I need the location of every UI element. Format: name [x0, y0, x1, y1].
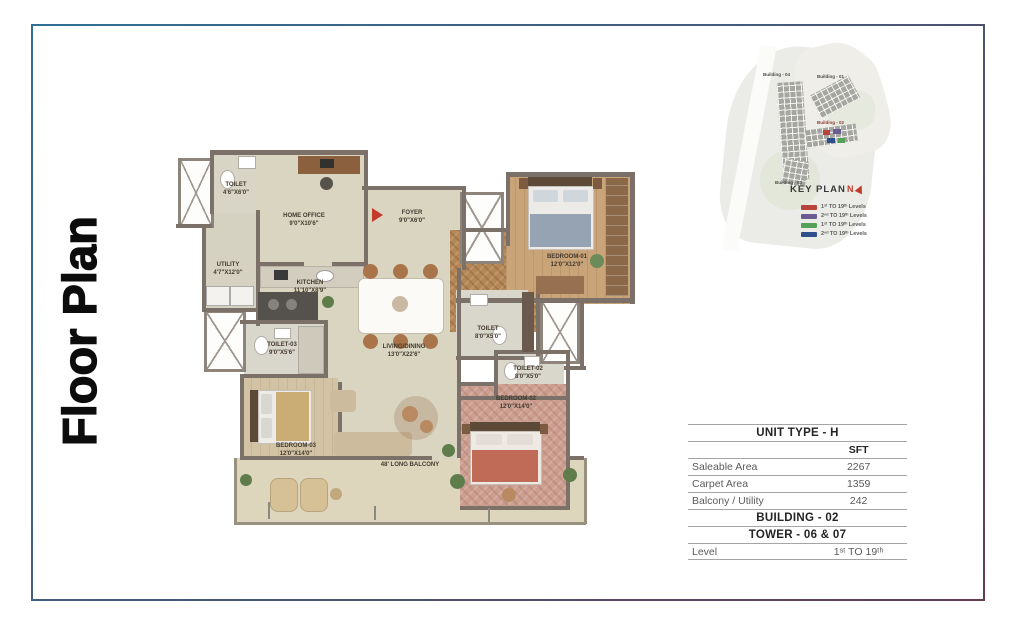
- room-dim: 8'0"X5'0": [475, 334, 501, 342]
- dimension-tick: [374, 506, 376, 520]
- row-label: Balcony / Utility: [688, 495, 810, 507]
- pillow: [261, 394, 272, 414]
- row-label: Carpet Area: [688, 478, 810, 490]
- legend-row: 1ˢᵗ TO 19ᵗʰ Levels: [801, 222, 867, 228]
- dining-chair: [363, 264, 378, 279]
- wall: [240, 456, 432, 460]
- wall: [240, 376, 244, 458]
- elevator-shaft: [540, 300, 580, 364]
- elevator-shaft: [178, 158, 214, 228]
- pillow: [261, 418, 272, 438]
- bed1-blanket: [530, 214, 591, 247]
- chair: [590, 254, 604, 268]
- building-label: Building - 01: [817, 74, 844, 79]
- legend-label: 2ⁿᵈ TO 19ᵗʰ Levels: [821, 231, 867, 237]
- table-row-saleable: Saleable Area 2267: [688, 458, 907, 475]
- pillow: [533, 190, 558, 202]
- room-dim: 11'10"X8'9": [294, 288, 326, 296]
- wall: [462, 228, 508, 232]
- table-row-balcony: Balcony / Utility 242: [688, 492, 907, 509]
- dimension-tick: [488, 508, 490, 522]
- legend-swatch-purple: [801, 214, 817, 219]
- side-table: [519, 178, 528, 189]
- row-label: Level: [688, 546, 810, 558]
- dimension-tick: [268, 502, 270, 519]
- legend-label: 1ˢᵗ TO 19ᵗʰ Levels: [821, 222, 866, 228]
- pillow: [563, 190, 588, 202]
- wall: [210, 150, 214, 214]
- room-dim: 12'0"X14'0": [500, 404, 533, 412]
- burner: [286, 299, 297, 310]
- wall: [536, 290, 540, 358]
- room-name: BEDROOM-03: [276, 443, 316, 451]
- toilet-sink: [238, 156, 256, 169]
- room-dim: 12'0"X12'0": [551, 262, 584, 270]
- wall: [364, 150, 368, 270]
- table-row-level: Level 1ˢᵗ TO 19ᵗʰ: [688, 543, 907, 560]
- wall: [324, 320, 328, 378]
- legend-swatch-green: [801, 223, 817, 228]
- entry-arrow-icon: [372, 208, 383, 222]
- shower: [298, 326, 324, 374]
- pouf: [402, 406, 418, 422]
- balcony-railing: [234, 522, 586, 525]
- wall: [202, 308, 258, 312]
- toilet-sink: [470, 294, 488, 306]
- bed2-blanket: [472, 450, 538, 482]
- tower-title: TOWER - 06 & 07: [688, 526, 907, 543]
- floor-plan-page: { "page": { "vertical_title": "Floor Pla…: [0, 0, 1020, 628]
- row-value: 2267: [810, 461, 907, 473]
- page-title: Floor Plan: [52, 216, 107, 446]
- table-header-row: SFT: [688, 441, 907, 458]
- burner: [268, 299, 279, 310]
- wall: [240, 320, 326, 324]
- room-name: TOILET: [225, 182, 246, 190]
- room-dim: 12'0"X14'0": [280, 451, 313, 459]
- legend-swatch-blue: [801, 232, 817, 237]
- pouf: [420, 420, 433, 433]
- unit-marker-purple: [833, 129, 841, 134]
- room-name: KITCHEN: [297, 280, 324, 288]
- pillow: [507, 434, 533, 445]
- kitchen-hob: [274, 270, 288, 280]
- legend-row: 2ⁿᵈ TO 19ᵗʰ Levels: [801, 231, 867, 237]
- pillow: [476, 434, 502, 445]
- legend-row: 2ⁿᵈ TO 19ᵗʰ Levels: [801, 213, 867, 219]
- pouf: [502, 488, 516, 502]
- room-dim: 9'0"X6'0": [399, 218, 425, 226]
- vanity: [522, 292, 534, 352]
- north-label: N: [847, 184, 854, 194]
- wall: [240, 374, 326, 378]
- room-name: UTILITY: [217, 262, 240, 270]
- wall: [362, 186, 464, 190]
- side-table: [462, 424, 470, 434]
- wall: [460, 506, 568, 510]
- room-dim: 4'7"X12'0": [213, 270, 242, 278]
- unit-marker-blue: [827, 138, 835, 143]
- sofa: [334, 432, 412, 456]
- building-label: Building - 04: [763, 72, 790, 77]
- office-chair: [320, 177, 333, 190]
- room-label-bedroom2: BEDROOM-02 12'0"X14'0": [496, 396, 536, 412]
- wall: [176, 224, 212, 228]
- room-label-utility: UTILITY 4'7"X12'0": [213, 262, 242, 278]
- room-label-balcony: 48' LONG BALCONY: [381, 462, 439, 470]
- room-name: TOILET: [477, 326, 498, 334]
- plant-icon: [450, 474, 465, 489]
- key-plan: Building - 04 Building - 01 Building - 0…: [705, 32, 910, 250]
- dining-chair: [393, 264, 408, 279]
- unit-type-text: UNIT TYPE - H: [756, 427, 839, 439]
- row-value: 242: [810, 495, 907, 507]
- table-row-carpet: Carpet Area 1359: [688, 475, 907, 492]
- plant-icon: [563, 468, 577, 482]
- side-table: [540, 424, 548, 434]
- plant-icon: [442, 444, 455, 457]
- wall: [234, 458, 237, 524]
- room-name: 48' LONG BALCONY: [381, 462, 439, 470]
- centerpiece: [392, 296, 408, 312]
- room-label-kitchen: KITCHEN 11'10"X8'9": [294, 280, 326, 296]
- lounge-chair: [270, 478, 298, 512]
- room-name: LIVING/DINING: [383, 344, 426, 352]
- room-name: FOYER: [402, 210, 423, 218]
- row-label: Saleable Area: [688, 461, 810, 473]
- legend-label: 1ˢᵗ TO 19ᵗʰ Levels: [821, 204, 866, 210]
- utility-appliance: [206, 286, 230, 306]
- dining-chair: [423, 264, 438, 279]
- bed3-blanket: [276, 392, 309, 441]
- unit-type-title: UNIT TYPE - H: [688, 424, 907, 441]
- room-name: TOILET-02: [513, 366, 543, 374]
- toilet-sink: [274, 328, 291, 339]
- room-label-home-office: HOME OFFICE 9'0"X10'6": [283, 213, 325, 229]
- unit-marker-green: [838, 138, 845, 143]
- room-label-bedroom3: BEDROOM-03 12'0"X14'0": [276, 443, 316, 459]
- lounge-chair: [300, 478, 328, 512]
- utility-appliance: [230, 286, 254, 306]
- wall: [456, 356, 528, 360]
- legend-row: 1ˢᵗ TO 19ᵗʰ Levels: [801, 204, 867, 210]
- wall: [580, 298, 584, 370]
- plant-icon: [240, 474, 252, 486]
- room-label-bedroom1: BEDROOM-01 12'0"X12'0": [547, 254, 587, 270]
- legend-label: 2ⁿᵈ TO 19ᵗʰ Levels: [821, 213, 867, 219]
- room-label-toilet2: TOILET-02 8'0"X5'0": [513, 366, 543, 382]
- dining-chair: [363, 334, 378, 349]
- room-dim: 4'6"X6'0": [223, 190, 249, 198]
- bed1-headboard: [528, 177, 592, 186]
- key-plan-title: KEY PLAN: [790, 184, 846, 195]
- wall: [457, 268, 461, 458]
- wall: [584, 458, 587, 524]
- unit-marker-red: [823, 130, 830, 135]
- room-name: BEDROOM-02: [496, 396, 536, 404]
- key-plan-legend: 1ˢᵗ TO 19ᵗʰ Levels 2ⁿᵈ TO 19ᵗʰ Levels 1ˢ…: [801, 204, 867, 240]
- building-label: Building - 02: [817, 120, 844, 125]
- wall: [630, 172, 635, 304]
- tower-text: TOWER - 06 & 07: [749, 529, 847, 541]
- bed3-headboard: [250, 390, 258, 442]
- building-text: BUILDING - 02: [756, 512, 839, 524]
- room-name: BEDROOM-01: [547, 254, 587, 262]
- side-table: [593, 178, 602, 189]
- room-dim: 9'0"X5'6": [269, 350, 295, 358]
- unit-info-table: UNIT TYPE - H SFT Saleable Area 2267 Car…: [688, 424, 907, 560]
- room-name: TOILET-03: [267, 342, 297, 350]
- room-label-living: LIVING/DINING 13'0"X22'6": [383, 344, 426, 360]
- row-value: 1ˢᵗ TO 19ᵗʰ: [810, 546, 907, 558]
- legend-swatch-red: [801, 205, 817, 210]
- room-label-toilet-mid: TOILET 8'0"X5'0": [475, 326, 501, 342]
- wall: [506, 172, 510, 246]
- room-label-toilet3: TOILET-03 9'0"X5'6": [267, 342, 297, 358]
- wall: [460, 382, 496, 386]
- row-value: 1359: [810, 478, 907, 490]
- balcony-table: [330, 488, 342, 500]
- room-label-foyer: FOYER 9'0"X6'0": [399, 210, 425, 226]
- dresser: [536, 276, 584, 294]
- floor-plan-drawing: TOILET 4'6"X6'0" HOME OFFICE 9'0"X10'6" …: [170, 144, 675, 536]
- room-dim: 13'0"X22'6": [388, 352, 421, 360]
- room-name: HOME OFFICE: [283, 213, 325, 221]
- plant-icon: [322, 296, 334, 308]
- room-label-toilet-top: TOILET 4'6"X6'0": [223, 182, 249, 198]
- wall: [210, 150, 368, 155]
- wall: [462, 186, 466, 270]
- sft-header: SFT: [810, 444, 907, 456]
- monitor: [320, 159, 334, 168]
- bed2-headboard: [470, 422, 540, 431]
- room-dim: 8'0"X5'0": [515, 374, 541, 382]
- wall: [494, 350, 498, 398]
- armchair: [330, 390, 356, 412]
- wall: [566, 350, 570, 510]
- building-label: Building - 03: [775, 180, 802, 185]
- wardrobe: [606, 178, 628, 296]
- building-title: BUILDING - 02: [688, 509, 907, 526]
- room-dim: 9'0"X10'6": [289, 221, 318, 229]
